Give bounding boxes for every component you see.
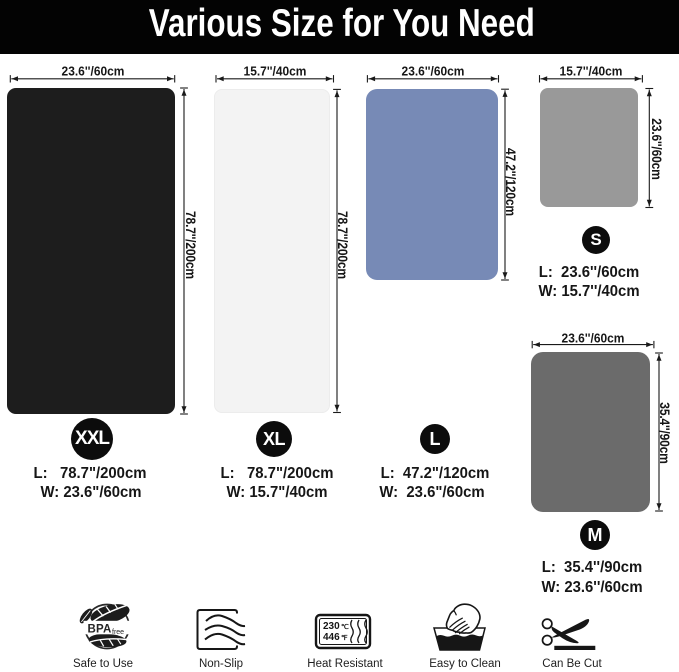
- svg-text:free: free: [112, 629, 124, 636]
- svg-text:230: 230: [323, 621, 340, 632]
- svg-text:℃: ℃: [341, 623, 349, 631]
- svg-text:446: 446: [323, 632, 340, 643]
- svg-text:BPA: BPA: [88, 623, 112, 635]
- svg-text:℉: ℉: [341, 634, 348, 642]
